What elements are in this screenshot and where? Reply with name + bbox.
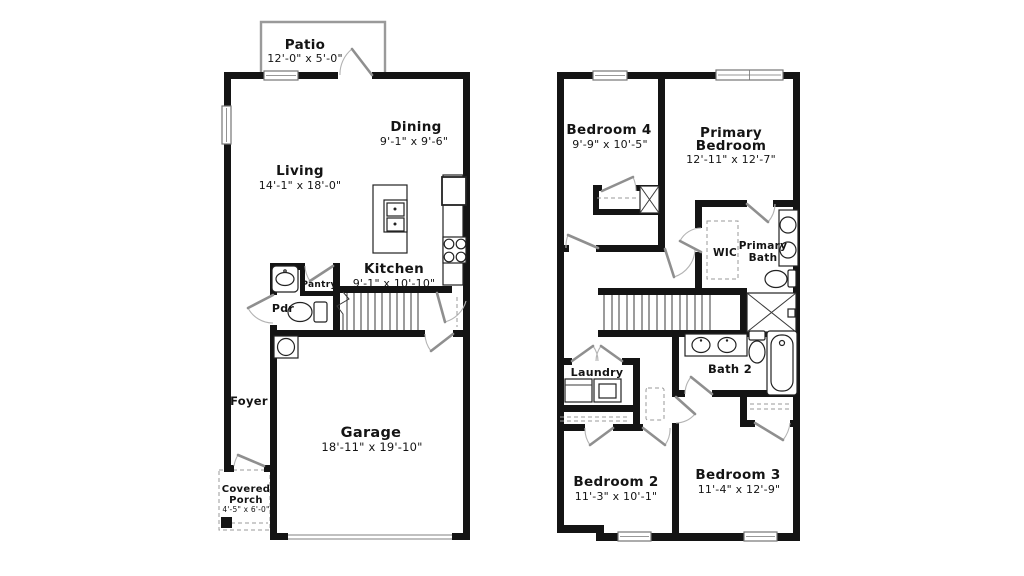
shower-icon <box>747 293 796 332</box>
garage-dims: 18'-11" x 19'-10" <box>321 440 422 454</box>
toilet-icon <box>749 331 765 363</box>
kitchen-counter <box>442 175 466 285</box>
first-floor-plan: Patio 12'-0" x 5'-0" Dining 9'-1" x 9'-6… <box>219 22 470 541</box>
kitchen-label: Kitchen <box>364 261 424 277</box>
porch-post <box>221 517 232 528</box>
window <box>593 71 627 80</box>
refrigerator-icon <box>442 177 466 205</box>
floorplan-canvas: Patio 12'-0" x 5'-0" Dining 9'-1" x 9'-6… <box>0 0 1024 576</box>
living-dims: 14'-1" x 18'-0" <box>259 179 342 192</box>
window <box>744 532 777 541</box>
garage-door <box>288 533 452 541</box>
primary-bath-label-1: Primary <box>739 240 788 252</box>
primary-bedroom-dims: 12'-11" x 12'-7" <box>686 153 776 166</box>
window <box>264 71 298 80</box>
door-arcs-first-floor <box>234 49 466 466</box>
window <box>222 106 231 144</box>
bathtub-icon <box>767 331 797 395</box>
water-heater-icon <box>274 336 298 358</box>
toilet-icon <box>765 270 796 288</box>
attic-access-dashed <box>646 388 664 420</box>
garage-label: Garage <box>341 425 402 441</box>
bedroom3-dims: 11'-4" x 12'-9" <box>698 483 781 496</box>
stove-icon <box>443 237 466 263</box>
dining-dims: 9'-1" x 9'-6" <box>380 135 448 148</box>
floorplan-image: Patio 12'-0" x 5'-0" Dining 9'-1" x 9'-6… <box>0 0 1024 576</box>
dryer-icon <box>594 379 621 402</box>
kitchen-dims: 9'-1" x 10'-10" <box>353 277 436 290</box>
dining-label: Dining <box>390 119 441 135</box>
powder-sink-icon <box>272 266 298 292</box>
window <box>618 532 651 541</box>
bedroom4-label: Bedroom 4 <box>566 122 651 138</box>
stairs-first-floor <box>337 292 418 330</box>
covered-porch-label-1: Covered <box>222 484 270 495</box>
bath2-vanity <box>685 334 747 356</box>
kitchen-island <box>373 185 407 253</box>
living-label: Living <box>276 163 324 179</box>
pantry-label: Pantry <box>301 280 336 290</box>
second-floor-plan: Bedroom 4 9'-9" x 10'-5" Primary Bedroom… <box>557 70 800 541</box>
washer-icon <box>565 379 592 402</box>
bedroom3-label: Bedroom 3 <box>695 467 780 483</box>
powder-room-label: Pdr <box>272 302 295 315</box>
primary-bedroom-label-2: Bedroom <box>696 138 766 154</box>
sink-icon <box>780 217 796 233</box>
patio-dims: 12'-0" x 5'-0" <box>267 52 342 65</box>
bath2-label: Bath 2 <box>708 362 752 376</box>
primary-bath-vanity <box>779 210 798 266</box>
window <box>716 70 783 80</box>
bedroom4-dims: 9'-9" x 10'-5" <box>572 138 647 151</box>
stairs-second-floor <box>604 295 710 330</box>
bedroom2-label: Bedroom 2 <box>573 474 658 490</box>
chase-box <box>640 186 659 213</box>
foyer-label: Foyer <box>230 394 268 408</box>
primary-bath-label-2: Bath <box>749 252 778 264</box>
wic-label: WIC <box>713 247 737 259</box>
bedroom2-dims: 11'-3" x 10'-1" <box>575 490 658 503</box>
laundry-label: Laundry <box>571 366 624 379</box>
patio-label: Patio <box>285 37 326 53</box>
covered-porch-dims: 4'-5" x 6'-0" <box>222 505 269 514</box>
